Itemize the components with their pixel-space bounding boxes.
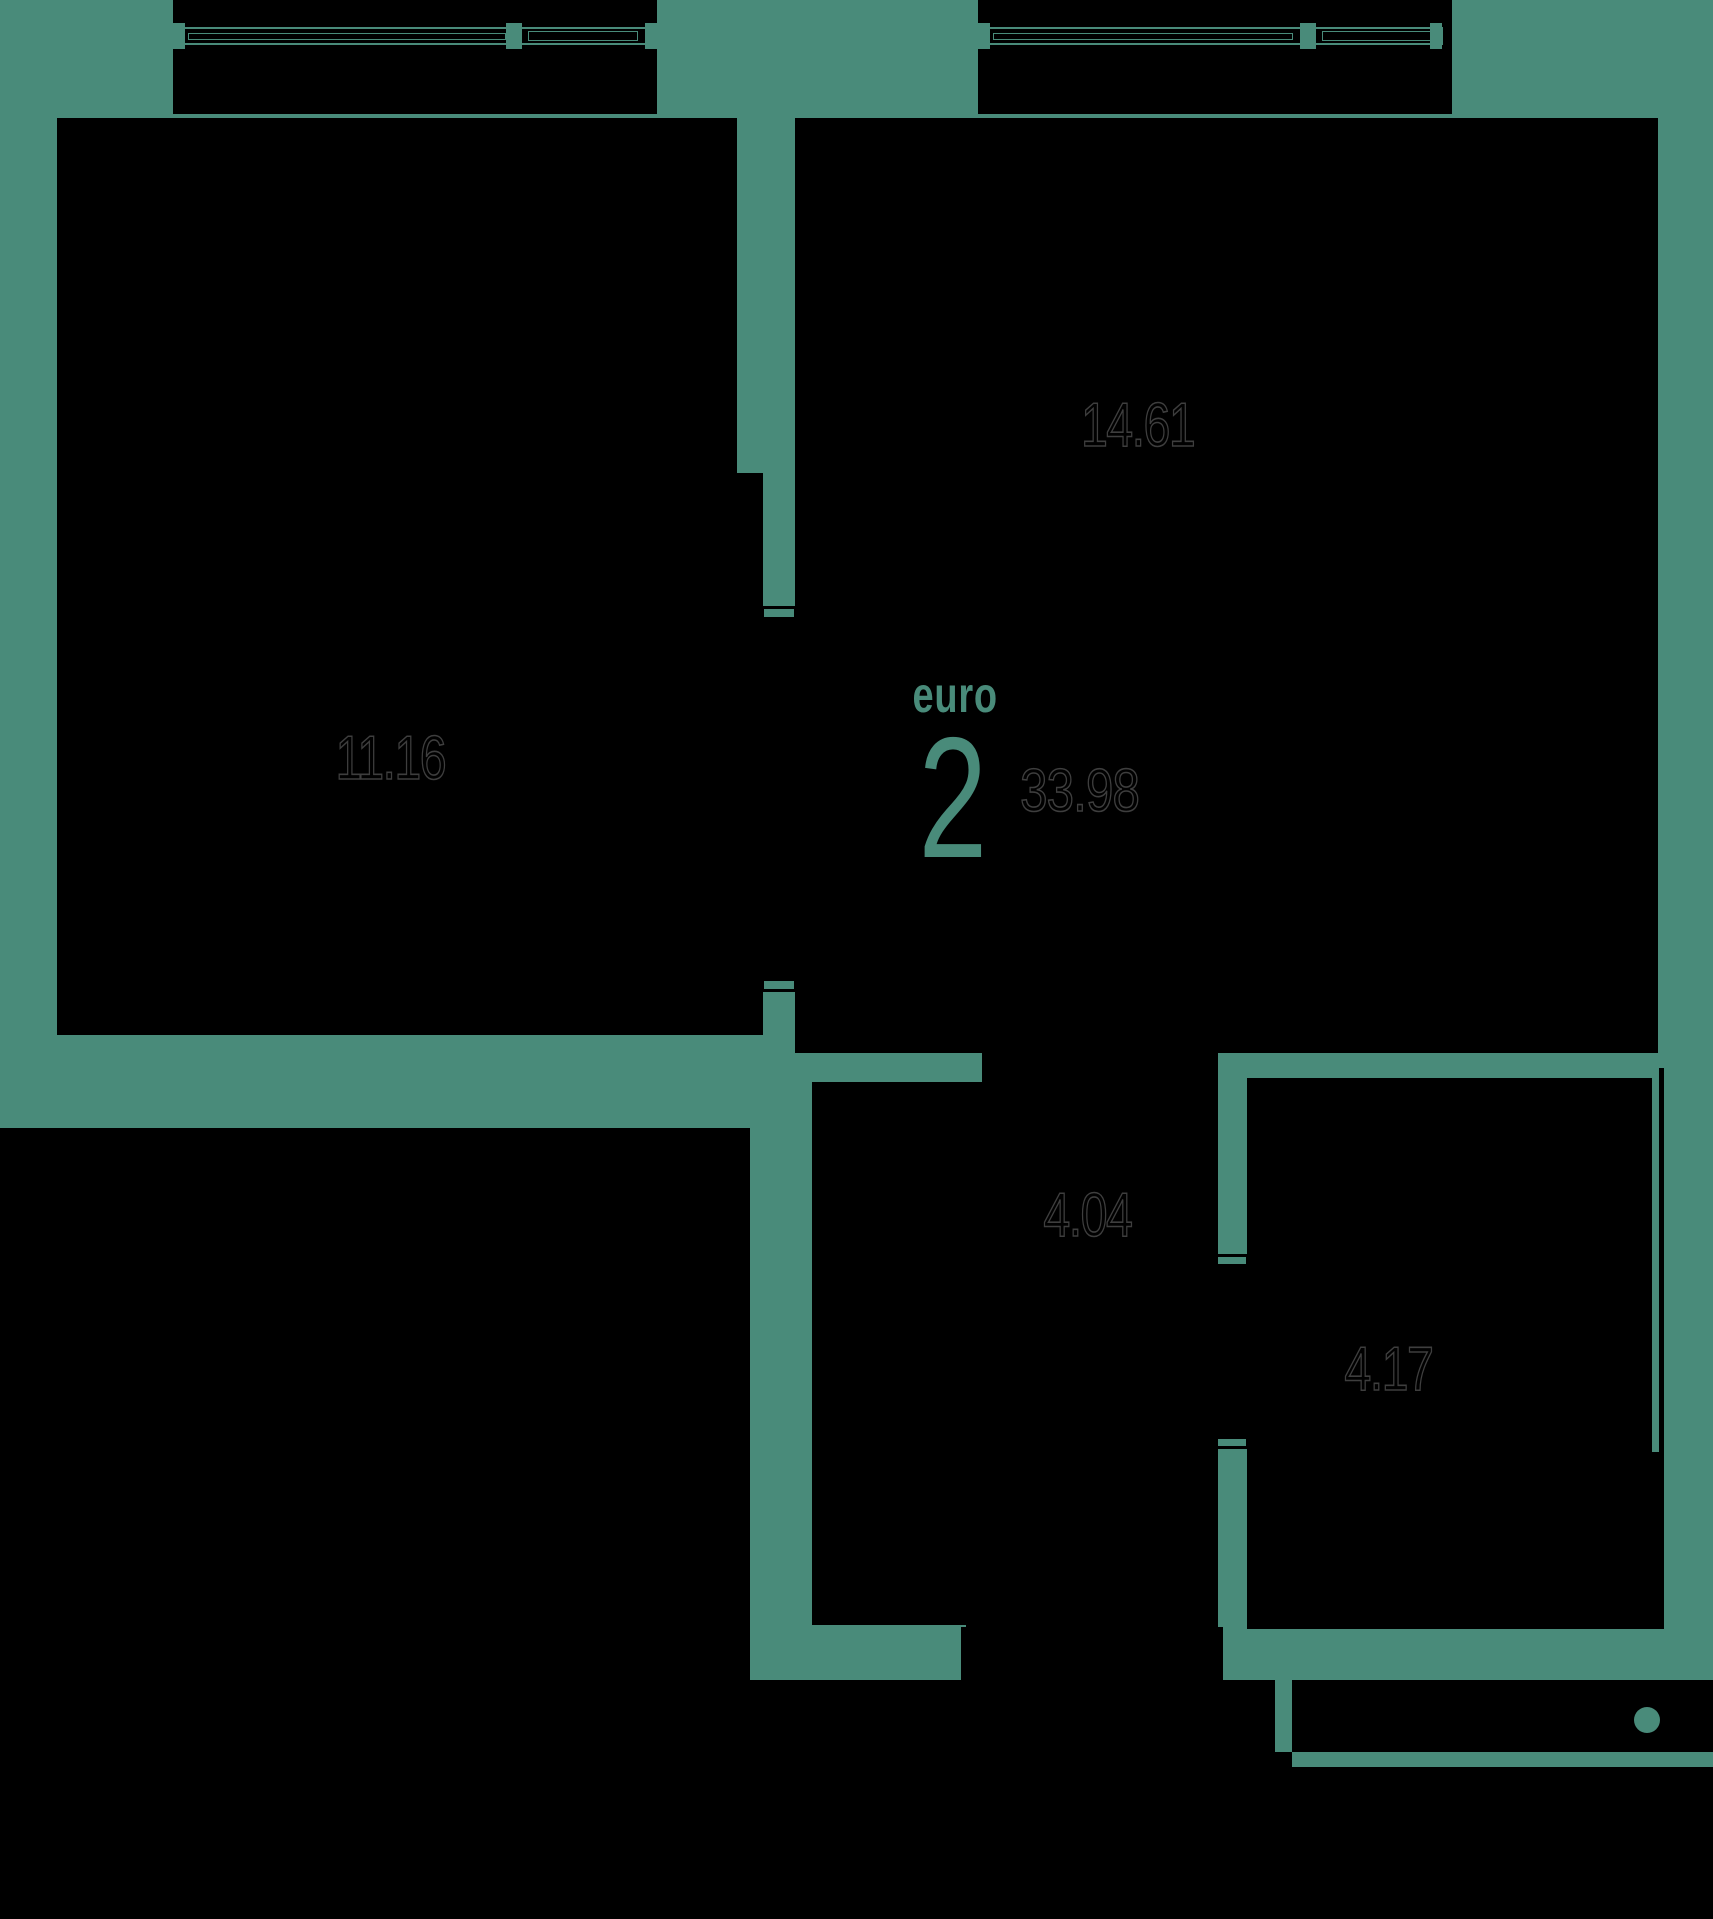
hall-fill xyxy=(812,1082,1218,1625)
entry-door-axis-dot xyxy=(1634,1707,1660,1733)
window-left-mullion-icon xyxy=(506,23,522,49)
window-right-cap-right-icon xyxy=(1430,23,1442,49)
window-left-sash-icon xyxy=(528,31,638,41)
room-bottom-left-fill xyxy=(0,1128,750,1919)
room-left-fill xyxy=(57,118,737,1035)
jamb-tick-mid-wall-bottom-inner xyxy=(764,981,794,989)
jamb-tick-entry-left xyxy=(961,1627,966,1680)
window-right-sash-icon xyxy=(1322,31,1434,41)
doorway-room-to-hall xyxy=(982,1053,1218,1082)
bathroom-door-opening xyxy=(1218,1267,1247,1437)
floor-plan: 11.16 14.61 4.04 4.17 euro 2 33.98 xyxy=(0,0,1713,1919)
jamb-tick-mid-wall-top-inner xyxy=(764,609,794,617)
window-right-pane-icon xyxy=(993,33,1293,40)
shaft-niche-fill xyxy=(1618,1452,1663,1629)
balcony-block-left xyxy=(173,0,657,114)
window-right-mullion-icon xyxy=(1300,23,1316,49)
jamb-tick-entry-right xyxy=(1218,1627,1223,1680)
balcony-block-right xyxy=(978,0,1452,114)
entry-landing-wall xyxy=(1275,1680,1292,1752)
window-left-cap-left-icon xyxy=(173,23,185,49)
doorway-between-rooms xyxy=(763,620,795,985)
bottom-mass-fill xyxy=(750,1680,1713,1919)
entry-door-opening xyxy=(966,1625,1218,1680)
jamb-tick-bath-door-bottom-inner xyxy=(1218,1439,1246,1446)
entry-landing-floor-line xyxy=(1292,1752,1713,1767)
bathroom-fill xyxy=(1247,1078,1652,1629)
jamb-tick-bath-door-top-inner xyxy=(1218,1257,1246,1264)
window-left-pane-icon xyxy=(188,33,506,40)
room-left-fill-step xyxy=(737,473,763,1035)
window-left-cap-right-icon xyxy=(645,23,657,49)
window-right-cap-left-icon xyxy=(978,23,990,49)
room-right-fill xyxy=(795,118,1658,1053)
